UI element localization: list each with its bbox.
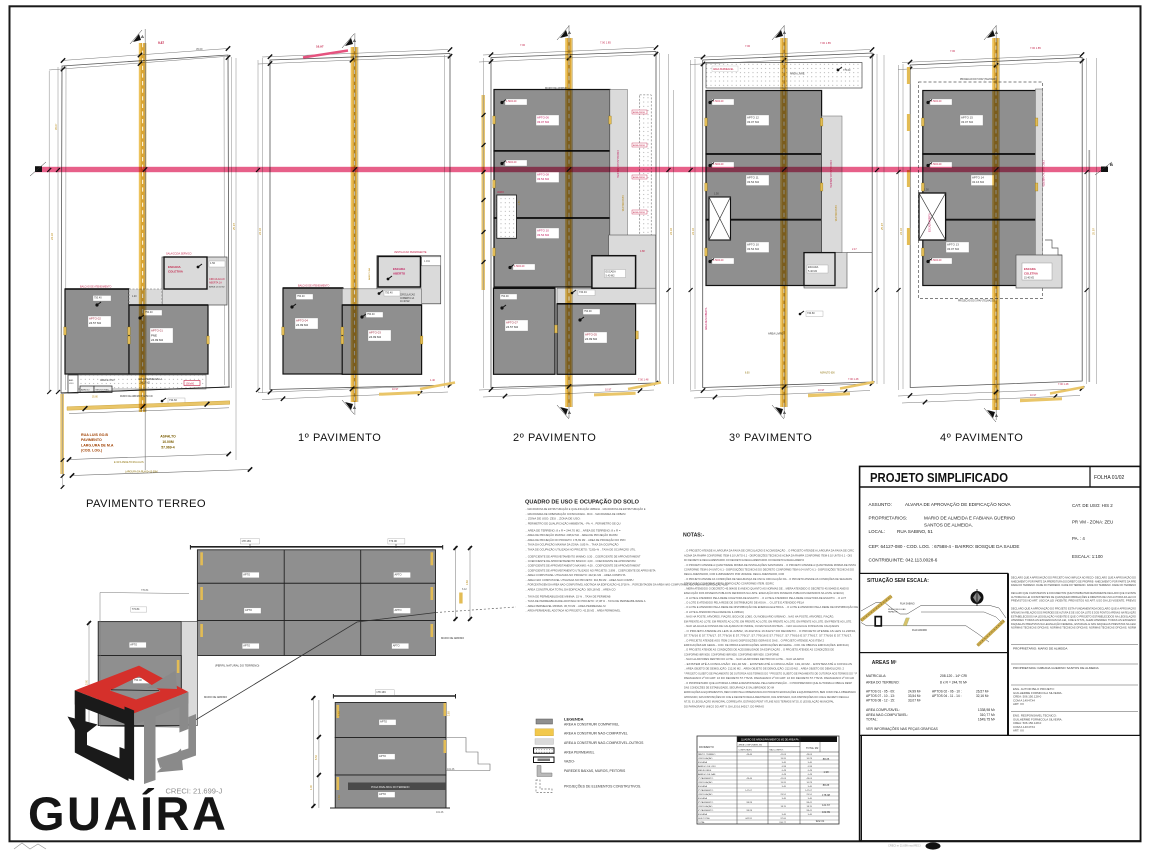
svg-text:PREVISTOS NO ART. USO DA LEI: PREVISTOS NO ART. USO DA LEI VIGENTE. PR… bbox=[1011, 599, 1136, 603]
svg-text:DADE DO TERRENO. DADE DO TER: DADE DO TERRENO. DADE DO TERRENO. DADE D… bbox=[1011, 583, 1137, 587]
svg-text:AREA NAO-COMPUTAVEL:: AREA NAO-COMPUTAVEL: bbox=[866, 713, 908, 717]
svg-text:6.00: 6.00 bbox=[745, 373, 750, 375]
svg-text:.. COEFICIENTE DE APROVEITAMEN: .. COEFICIENTE DE APROVEITAMENTO UTILIZA… bbox=[526, 568, 656, 572]
svg-text:1.491: 1.491 bbox=[424, 260, 431, 263]
svg-text:98.41: 98.41 bbox=[807, 802, 813, 804]
svg-text:7.00: 7.00 bbox=[520, 43, 526, 47]
svg-text:* PROJETO SUJEITO DE PAGAMENTO: * PROJETO SUJEITO DE PAGAMENTO DE OUTORG… bbox=[684, 671, 857, 675]
svg-text:AREA LIVRE: AREA LIVRE bbox=[790, 73, 805, 76]
svg-text:.. NAO HA ARVORES DENTRO DO LO: .. NAO HA ARVORES DENTRO DO LOTE. .. NAO… bbox=[684, 657, 805, 661]
svg-text:.. ZONA DE USO: ZEU .. ZONA: .. ZONA DE USO: ZEU .. ZONA DE USO: bbox=[526, 517, 581, 521]
svg-text:24.99 M2: 24.99 M2 bbox=[296, 323, 308, 327]
svg-text:770.84: 770.84 bbox=[132, 608, 140, 611]
svg-text:CONFORME NBR 9050. CONFORME NB: CONFORME NBR 9050. CONFORME NBR 9050. CO… bbox=[684, 652, 779, 656]
svg-text:2.80: 2.80 bbox=[338, 795, 341, 800]
svg-text:NOTAS:-: NOTAS:- bbox=[683, 533, 704, 539]
svg-text:APTO: APTO bbox=[243, 644, 250, 648]
svg-text:ART: XX: ART: XX bbox=[1013, 729, 1024, 733]
svg-text:.. AREA PERMEAVEL MINIMA: 36,: .. AREA PERMEAVEL MINIMA: 36,70 M2 .. AR… bbox=[526, 604, 606, 608]
svg-text:150x60: 150x60 bbox=[186, 381, 195, 385]
svg-text:AREA PERM.: AREA PERM. bbox=[633, 176, 646, 179]
svg-text:NTJS, E LEGISLAÇÃO MUNICIPAL: NTJS, E LEGISLAÇÃO MUNICIPAL CORRELATA, … bbox=[684, 699, 834, 704]
svg-text:.. AREA OBJETO DE DEMOLIÇÃO: 2: .. AREA OBJETO DE DEMOLIÇÃO: 212,00 M2 .… bbox=[684, 666, 844, 671]
svg-text:TOTAL: TOTAL bbox=[698, 821, 706, 824]
svg-text:PROJECAO DO 5 PAV (TELHADO): PROJECAO DO 5 PAV (TELHADO) bbox=[960, 78, 997, 81]
svg-text:A: A bbox=[353, 38, 356, 43]
svg-text:15.20: 15.20 bbox=[781, 758, 787, 760]
svg-text:MARIO DE ALMEIDA E FABIANA GU: MARIO DE ALMEIDA E FABIANA GUERINO bbox=[924, 516, 1016, 521]
svg-text:CONTRIBUINTE: 042.113.002: CONTRIBUINTE: 042.113.0028-6 bbox=[869, 558, 938, 563]
svg-text:APTO: APTO bbox=[243, 572, 250, 576]
svg-text:.. AREA PERMEAVEL ADOTADA NO P: .. AREA PERMEAVEL ADOTADA NO PROJETO: 42… bbox=[526, 609, 621, 613]
svg-text:APTO 05: APTO 05 bbox=[585, 333, 597, 337]
svg-text:.. AREA NAO COMPUTAVEL UTILIZA: .. AREA NAO COMPUTAVEL UTILIZADA NO PROJ… bbox=[526, 578, 634, 582]
svg-text:PA. : 4: PA. : 4 bbox=[1072, 536, 1085, 541]
svg-text:24.99 M2: 24.99 M2 bbox=[369, 335, 381, 339]
svg-text:1.50: 1.50 bbox=[714, 193, 719, 196]
svg-text:REGUL AMENTADOR, COM ILUMINAME: REGUL AMENTADOR, COM ILUMINAMENTO POR UN… bbox=[684, 572, 784, 576]
svg-text:33.07 M2: 33.07 M2 bbox=[747, 120, 759, 124]
svg-text:AREA COMPUTAVEL:: AREA COMPUTAVEL: bbox=[866, 708, 900, 712]
svg-text:35.80: 35.80 bbox=[92, 397, 98, 399]
svg-text:5.40 M2: 5.40 M2 bbox=[808, 270, 818, 273]
svg-text:.. O PROJETO ATENDE AOS ITEM: .. O PROJETO ATENDE AOS ITEM 2 SUAS DISP… bbox=[684, 637, 824, 642]
svg-text:AREA PERM.: AREA PERM. bbox=[633, 211, 646, 214]
svg-text:PAVTO. TERREO: PAVTO. TERREO bbox=[698, 753, 716, 756]
svg-text:754.00: 754.00 bbox=[501, 295, 509, 298]
svg-text:2.47: 2.47 bbox=[852, 248, 857, 251]
svg-text:RUA MADRID: RUA MADRID bbox=[912, 629, 927, 632]
svg-text:MURO DE ARRIMO H=2.50 CD: MURO DE ARRIMO H=2.50 CD bbox=[120, 395, 153, 398]
svg-text:PROJECAO DO 5 PAV (TELHADO): PROJECAO DO 5 PAV (TELHADO) bbox=[958, 300, 995, 303]
svg-text:7.00: 7.00 bbox=[745, 44, 751, 48]
svg-text:750.40: 750.40 bbox=[134, 678, 142, 682]
svg-text:APTO 08: APTO 08 bbox=[537, 173, 549, 177]
svg-text:APTO 06: APTO 06 bbox=[537, 116, 549, 120]
svg-text:ALVARA DE APROVAÇÃO DE EDIFIC: ALVARA DE APROVAÇÃO DE EDIFICAÇÃO NOVA bbox=[905, 501, 1012, 507]
svg-text:1.50/4.20: 1.50/4.20 bbox=[931, 259, 942, 262]
svg-text:AREA PERMEAVEL: AREA PERMEAVEL bbox=[713, 68, 734, 71]
svg-text:APTO 10: APTO 10 bbox=[747, 243, 759, 247]
svg-text:57.969-4: 57.969-4 bbox=[161, 446, 174, 450]
svg-text:APTO 03: APTO 03 bbox=[369, 331, 381, 335]
svg-text:ACIMA DA RAMPA CONFORME ITEM 6: ACIMA DA RAMPA CONFORME ITEM 6.10 UNTO 6… bbox=[684, 552, 852, 557]
svg-text:APTO: APTO bbox=[380, 720, 387, 724]
svg-text:SANTOS DE ALMEIDA.: SANTOS DE ALMEIDA. bbox=[924, 523, 973, 528]
svg-text:QUADRO DE AREAS/PAVIMENTOS M2: QUADRO DE AREAS/PAVIMENTOS M2 DE AREA PA bbox=[741, 739, 799, 742]
svg-text:LARG.URA DE M.A: LARG.URA DE M.A bbox=[81, 443, 114, 447]
svg-text:AREA A CONSTRUIR COMPATIVEL: AREA A CONSTRUIR COMPATIVEL bbox=[564, 723, 619, 727]
svg-text:6.52: 6.52 bbox=[315, 755, 318, 760]
svg-text:SUB TOTAL: SUB TOTAL bbox=[698, 817, 711, 820]
svg-text:.. MACROAREA DE URBANIZAÇÃO CO: .. MACROAREA DE URBANIZAÇÃO CONSOLIDADA … bbox=[526, 511, 626, 516]
svg-text:.. NAO HA AGUA E FOSSAS DE CAL: .. NAO HA AGUA E FOSSAS DE CALIÇADAS NO … bbox=[684, 624, 839, 628]
svg-text:.. AREA COMPUTAVEL UTILIZADA: .. AREA COMPUTAVEL UTILIZADA NO PROJETO:… bbox=[526, 573, 626, 577]
svg-text:E 32.5 ASFALTO RUA LUIS: E 32.5 ASFALTO RUA LUIS bbox=[114, 461, 144, 464]
svg-text:178.98: 178.98 bbox=[822, 793, 830, 797]
svg-text:1.50/4.20: 1.50/4.20 bbox=[713, 100, 724, 103]
svg-text:EXECUÇÃO DOS PASSEIOS PUBLICOS: EXECUÇÃO DOS PASSEIOS PUBLICOS DEFINIDOS… bbox=[684, 590, 845, 595]
svg-text:4º PAVIMENTO: 4º PAVIMENTO bbox=[698, 809, 713, 812]
svg-text:750.40: 750.40 bbox=[385, 292, 393, 295]
svg-text:49.03: 49.03 bbox=[807, 754, 813, 756]
svg-text:8 x R = 244,70 M²: 8 x R = 244,70 M² bbox=[940, 681, 968, 685]
svg-text:EDIFICAÇÕES EM GERAL - COD. DE: EDIFICAÇÕES EM GERAL - COD. DE OBRAS E E… bbox=[684, 642, 850, 647]
svg-text:APTO 11: APTO 11 bbox=[747, 176, 759, 180]
svg-text:35.09: 35.09 bbox=[196, 47, 203, 51]
svg-text:.. COEFICIENTE DE APROVEITAMEN: .. COEFICIENTE DE APROVEITAMENTO MINIMO:… bbox=[526, 554, 641, 558]
svg-text:1649,75 M²: 1649,75 M² bbox=[978, 718, 996, 722]
svg-text:750.40: 750.40 bbox=[367, 313, 375, 316]
svg-text:.. O PROJETO ATENDE A LARGURA: .. O PROJETO ATENDE A LARGURA DA FAIXA D… bbox=[684, 548, 855, 553]
svg-text:734.04: 734.04 bbox=[579, 291, 587, 294]
svg-text:33.54 M2: 33.54 M2 bbox=[537, 233, 549, 237]
svg-text:RUA SABINO: RUA SABINO bbox=[900, 603, 915, 606]
svg-text:ESCADA ABERTA: ESCADA ABERTA bbox=[929, 213, 932, 232]
svg-text:APTO 02: APTO 02 bbox=[89, 317, 101, 321]
svg-text:88.25: 88.25 bbox=[823, 757, 830, 761]
svg-text:.. AREA DE PROJEÇÃO DO PROJETO: .. AREA DE PROJEÇÃO DO PROJETO: 176,69 M… bbox=[526, 537, 627, 542]
svg-text:APTO 14: APTO 14 bbox=[972, 176, 984, 180]
svg-text:(COD. LOG.): (COD. LOG.) bbox=[81, 449, 103, 453]
svg-text:24.57 M2: 24.57 M2 bbox=[506, 325, 518, 329]
svg-text:MATRICULA:: MATRICULA: bbox=[866, 674, 886, 678]
svg-text:APROVADO, DAS DISPOSIÇÕES DO C: APROVADO, DAS DISPOSIÇÕES DO COE E DECRE… bbox=[684, 694, 849, 699]
svg-text:AREA 14.50 M2: AREA 14.50 M2 bbox=[209, 285, 225, 288]
svg-text:CIRCULAÇÃO: CIRCULAÇÃO bbox=[698, 805, 713, 808]
svg-text:24.32: 24.32 bbox=[691, 228, 695, 235]
svg-text:1º PAVIMENTO: 1º PAVIMENTO bbox=[698, 777, 713, 780]
svg-text:1.50: 1.50 bbox=[924, 189, 929, 192]
svg-text:33.54 M2: 33.54 M2 bbox=[747, 247, 759, 251]
svg-text:ESCADA: ESCADA bbox=[1024, 267, 1036, 271]
svg-text:750.40: 750.40 bbox=[94, 297, 102, 300]
svg-text:25.97: 25.97 bbox=[880, 223, 884, 230]
svg-text:QUADRO DE USO E OCUPAÇÃO DO SO: QUADRO DE USO E OCUPAÇÃO DO SOLO bbox=[525, 499, 639, 506]
svg-text:EDIFICAÇÕES E EQUIPAMENTOS, BE: EDIFICAÇÕES E EQUIPAMENTOS, BEM COMO PEL… bbox=[684, 689, 857, 694]
svg-text:A: A bbox=[783, 410, 786, 415]
svg-text:POGA PAVE ABUL DO TERRENO: POGA PAVE ABUL DO TERRENO bbox=[371, 786, 409, 789]
svg-text:A: A bbox=[995, 413, 998, 418]
svg-text:APTO 13: APTO 13 bbox=[947, 243, 959, 247]
svg-text:121.67: 121.67 bbox=[822, 803, 830, 807]
svg-text:1.50/4.20: 1.50/4.20 bbox=[713, 163, 724, 166]
svg-text:A: A bbox=[783, 30, 786, 35]
svg-text:ESCADA: ESCADA bbox=[393, 267, 406, 271]
svg-text:97.00: 97.00 bbox=[781, 818, 787, 820]
svg-text:1.50/4.20: 1.50/4.20 bbox=[931, 163, 942, 166]
svg-text:DO DECRETO E REGULAMENTADOR. D: DO DECRETO E REGULAMENTADOR. DO DECRETO … bbox=[684, 558, 804, 562]
svg-text:ESCADA: ESCADA bbox=[606, 271, 617, 274]
svg-text:.. TAXA DA OCUPAÇÃO MAXIMA DA: .. TAXA DA OCUPAÇÃO MAXIMA DA ZONA: 0,85… bbox=[526, 542, 620, 547]
svg-text:PARAGRAFO 2º DO ART. 16 DO D: PARAGRAFO 2º DO ART. 16 DO DECRETO 57.77… bbox=[684, 676, 855, 680]
svg-text:7.00 1.85: 7.00 1.85 bbox=[600, 41, 611, 45]
svg-text:754.00: 754.00 bbox=[584, 310, 592, 313]
svg-text:4º PAVIMENTO: 4º PAVIMENTO bbox=[940, 432, 1023, 444]
svg-text:APTO 07: APTO 07 bbox=[506, 321, 518, 325]
svg-text:.. O PROJETO ATENDE AS LEIS 1: .. O PROJETO ATENDE AS LEIS 11.228/92, 1… bbox=[684, 629, 856, 633]
svg-text:147.07: 147.07 bbox=[745, 790, 752, 792]
svg-text:LARGURA DA RUA E=10.00M: LARGURA DA RUA E=10.00M bbox=[125, 471, 158, 474]
svg-text:10.29: 10.29 bbox=[807, 758, 813, 760]
svg-text:DAS CONDIÇÕES DE ESTABILIDADE,: DAS CONDIÇÕES DE ESTABILIDADE, SEGURANÇA… bbox=[684, 684, 774, 689]
svg-text:750.40: 750.40 bbox=[297, 295, 305, 298]
svg-text:APTO: APTO bbox=[395, 572, 402, 576]
svg-text:98.28: 98.28 bbox=[747, 802, 753, 804]
svg-text:7.00 1.48: 7.00 1.48 bbox=[638, 379, 649, 382]
svg-text:PR VM - ZONA: ZEU: PR VM - ZONA: ZEU bbox=[1072, 520, 1113, 525]
svg-text:.. AREA DE PROJEÇÃO MAXIMA: 20: .. AREA DE PROJEÇÃO MAXIMA: 208,02 M2 ..… bbox=[526, 532, 618, 537]
svg-text:24.32: 24.32 bbox=[669, 228, 673, 235]
svg-text:PAREDES BAIXAS, MUROS, PEITORI: PAREDES BAIXAS, MUROS, PEITORIS bbox=[564, 769, 626, 773]
svg-text:APTO: APTO bbox=[245, 608, 252, 612]
svg-text:DESCOBERTA: DESCOBERTA bbox=[834, 205, 837, 222]
svg-text:734.60: 734.60 bbox=[807, 312, 815, 315]
svg-text:AREA COMPUTAVEL M2: AREA COMPUTAVEL M2 bbox=[739, 744, 763, 747]
svg-text:AREA A CONSTRUIR NAO-COMPATIV: AREA A CONSTRUIR NAO-COMPATIVEL bbox=[564, 732, 628, 736]
svg-text:6.42: 6.42 bbox=[462, 588, 467, 591]
svg-text:APTOS 07 - 10 - 13:: APTOS 07 - 10 - 13: bbox=[866, 694, 895, 698]
svg-text:1.50/4.20: 1.50/4.20 bbox=[506, 161, 517, 164]
svg-text:4.88: 4.88 bbox=[640, 250, 645, 253]
svg-text:33.54 M2: 33.54 M2 bbox=[537, 177, 549, 181]
svg-text:24,99 M²: 24,99 M² bbox=[908, 690, 921, 694]
svg-text:LIXO: LIXO bbox=[69, 383, 74, 385]
svg-text:RUA LUIS GO.B: RUA LUIS GO.B bbox=[81, 433, 108, 437]
svg-text:ASFALTO: ASFALTO bbox=[160, 435, 176, 439]
svg-text:.. TAXA DE PERMEABILIDADE ADOT: .. TAXA DE PERMEABILIDADE ADOTADA NO PRO… bbox=[526, 599, 646, 603]
svg-text:A: A bbox=[353, 405, 356, 410]
svg-text:GUAÍRA: GUAÍRA bbox=[28, 787, 228, 840]
svg-text:SITUAÇÃO SEM ESCALA:: SITUAÇÃO SEM ESCALA: bbox=[867, 577, 929, 584]
svg-text:24.99 M2: 24.99 M2 bbox=[585, 337, 597, 341]
svg-text:7.00 1.48: 7.00 1.48 bbox=[848, 378, 859, 381]
svg-text:773.00: 773.00 bbox=[389, 539, 397, 543]
svg-text:MURO DE ARRIMO: MURO DE ARRIMO bbox=[441, 636, 464, 640]
svg-text:7.00 1.85: 7.00 1.85 bbox=[820, 41, 831, 45]
svg-text:734.60: 734.60 bbox=[169, 398, 177, 402]
svg-text:PROPRIETARIOS:: PROPRIETARIOS: bbox=[869, 516, 908, 521]
svg-text:DESCOBERTA: DESCOBERTA bbox=[621, 195, 624, 212]
svg-text:.. O PROPRIETARIO QUE AUTORIZA: .. O PROPRIETARIO QUE AUTORIZA A OBRA E … bbox=[684, 680, 852, 685]
svg-text:CIRCULACAO ABERTA: CIRCULACAO ABERTA bbox=[1042, 160, 1045, 187]
svg-text:APTOS 08 - 12 - 15:: APTOS 08 - 12 - 15: bbox=[866, 699, 895, 703]
svg-text:1.50: 1.50 bbox=[210, 261, 216, 265]
svg-text:ABRIGO DE LIXO: ABRIGO DE LIXO bbox=[698, 765, 716, 768]
svg-text:.. O PROJETO ATENDE AS CONDIÇ: .. O PROJETO ATENDE AS CONDIÇÕES DE ACES… bbox=[684, 647, 834, 652]
svg-text:CAT. DE USO: HIS 2: CAT. DE USO: HIS 2 bbox=[1072, 503, 1113, 508]
svg-text:BALCAO DE ATENDIMENTO: BALCAO DE ATENDIMENTO bbox=[80, 286, 112, 289]
svg-text:147.07: 147.07 bbox=[805, 790, 812, 792]
svg-text:33,54 M²: 33,54 M² bbox=[908, 694, 921, 698]
svg-text:ESCADA: ESCADA bbox=[698, 761, 708, 764]
svg-text:9.87: 9.87 bbox=[158, 41, 164, 45]
svg-text:32.16 M2: 32.16 M2 bbox=[972, 180, 984, 184]
svg-text:RUA SABINO, 51: RUA SABINO, 51 bbox=[897, 529, 933, 534]
svg-text:7.00 1.85: 7.00 1.85 bbox=[1030, 46, 1041, 50]
svg-text:25.97: 25.97 bbox=[232, 223, 236, 230]
svg-text:PROJETO SIMPLIFICADO: PROJETO SIMPLIFICADO bbox=[870, 470, 1008, 485]
svg-text:10.97: 10.97 bbox=[1030, 394, 1037, 397]
svg-text:ASSUNTO:: ASSUNTO: bbox=[869, 502, 892, 507]
svg-text:770.84: 770.84 bbox=[141, 589, 149, 592]
svg-text:1.50/4.20: 1.50/4.20 bbox=[506, 100, 517, 103]
svg-text:10.97: 10.97 bbox=[392, 388, 399, 391]
svg-text:.. O LOTE E ATENDIDO PELA REDE: .. O LOTE E ATENDIDO PELA REDE DE DISTRI… bbox=[684, 604, 858, 609]
svg-text:APTO: APTO bbox=[130, 642, 137, 646]
svg-text:15.20: 15.20 bbox=[781, 782, 787, 784]
svg-text:1.40: 1.40 bbox=[430, 379, 435, 382]
svg-text:NAO-COMPUT.: NAO-COMPUT. bbox=[770, 749, 784, 752]
svg-text:.. O LOTE E ATENDIDO PELA REDE: .. O LOTE E ATENDIDO PELA REDE COLETORA … bbox=[684, 596, 846, 600]
svg-text:CIRCULACAO: CIRCULACAO bbox=[400, 294, 415, 297]
svg-text:10.00M: 10.00M bbox=[162, 440, 173, 444]
svg-text:APTO 10: APTO 10 bbox=[537, 229, 549, 233]
svg-text:.. PERIMETRO DE QUALIFICAÇÃO A: .. PERIMETRO DE QUALIFICAÇÃO AMBIENTAL -… bbox=[526, 520, 621, 525]
svg-text:APTO: APTO bbox=[379, 754, 386, 758]
svg-text:10.97: 10.97 bbox=[605, 388, 612, 391]
svg-text:APTO 01: APTO 01 bbox=[151, 329, 163, 333]
svg-text:310,77 M²: 310,77 M² bbox=[980, 713, 996, 717]
svg-text:2º PAVIMENTO: 2º PAVIMENTO bbox=[513, 432, 596, 444]
svg-text:ABERTA 1A: ABERTA 1A bbox=[209, 281, 222, 284]
svg-text:APTO 15: APTO 15 bbox=[961, 116, 973, 120]
svg-text:SALA/COZ/A.SERVICO: SALA/COZ/A.SERVICO bbox=[166, 253, 192, 256]
svg-text:.. COEFICIENTE DE APROVEITAMEN: .. COEFICIENTE DE APROVEITAMENTO BASICO:… bbox=[526, 559, 636, 563]
svg-text:CIRCULAÇÃO: CIRCULAÇÃO bbox=[698, 781, 713, 784]
svg-text:ASFALTO 600: ASFALTO 600 bbox=[820, 372, 835, 375]
svg-text:1.98: 1.98 bbox=[823, 770, 829, 774]
svg-text:ABERTO: ABERTO bbox=[393, 271, 406, 275]
svg-text:10.29: 10.29 bbox=[807, 782, 813, 784]
svg-text:33,07 M²: 33,07 M² bbox=[908, 699, 921, 703]
svg-text:A: A bbox=[568, 410, 571, 415]
svg-text:A: A bbox=[568, 30, 571, 35]
svg-text:.. O PROJETO ATENDE AS CONDIÇ: .. O PROJETO ATENDE AS CONDIÇÕES DE SEGU… bbox=[684, 576, 852, 581]
svg-text:COBERTA 1A: COBERTA 1A bbox=[400, 297, 415, 300]
svg-text:1.50/4.20: 1.50/4.20 bbox=[514, 265, 525, 268]
svg-text:35.07: 35.07 bbox=[54, 123, 58, 130]
svg-text:APTO 04: APTO 04 bbox=[296, 319, 308, 323]
svg-text:10.40 M2: 10.40 M2 bbox=[400, 301, 410, 303]
svg-text:49.03: 49.03 bbox=[807, 778, 813, 780]
svg-text:310.77: 310.77 bbox=[779, 822, 786, 824]
svg-text:1338,98 M²: 1338,98 M² bbox=[978, 708, 996, 712]
svg-text:COMPUTAVEL: COMPUTAVEL bbox=[739, 749, 753, 752]
svg-text:98.41: 98.41 bbox=[807, 810, 813, 812]
svg-text:15.40 M2: 15.40 M2 bbox=[1024, 276, 1035, 279]
svg-text:CIRCULACAO ABERTA: CIRCULACAO ABERTA bbox=[829, 160, 833, 188]
svg-text:2º PAVIMENTO: 2º PAVIMENTO bbox=[698, 789, 713, 792]
svg-text:CONFORME ITEM 6.04 UNTO 6.1 -: CONFORME ITEM 6.04 UNTO 6.1 - DISPOSIÇÕE… bbox=[684, 566, 855, 571]
svg-text:33.07 M2: 33.07 M2 bbox=[947, 247, 959, 251]
svg-text:10.97: 10.97 bbox=[818, 389, 825, 392]
svg-text:25.97: 25.97 bbox=[1092, 228, 1096, 235]
svg-text:ESCADA: ESCADA bbox=[698, 785, 708, 788]
svg-text:24.57 M2: 24.57 M2 bbox=[89, 321, 101, 325]
svg-text:49.46: 49.46 bbox=[747, 754, 753, 756]
svg-text:COLETIVA: COLETIVA bbox=[1024, 271, 1038, 275]
svg-text:33.07 M2: 33.07 M2 bbox=[961, 120, 973, 124]
svg-text:NORMAS TECNICAS OFICIAIS. NO: NORMAS TECNICAS OFICIAIS. NORMAS TECNICA… bbox=[1011, 626, 1137, 630]
svg-text:PROJEÇÕES DE ELEMENTOS CONSTR: PROJEÇÕES DE ELEMENTOS CONSTRUTIVOS. bbox=[564, 783, 641, 788]
svg-text:1.50: 1.50 bbox=[519, 200, 521, 205]
svg-text:VER INFORMAÇÕES NAS PEÇAS GR: VER INFORMAÇÕES NAS PEÇAS GRAFICAS bbox=[866, 726, 939, 731]
svg-text:57.776/16 E 57.776/17. 57.776/: 57.776/16 E 57.776/17. 57.776/16 E 57.77… bbox=[684, 634, 852, 638]
svg-text:24.32: 24.32 bbox=[258, 228, 262, 235]
svg-text:COLETIVA: COLETIVA bbox=[168, 270, 184, 274]
svg-text:3º PAVIMENTO: 3º PAVIMENTO bbox=[698, 801, 713, 804]
svg-text:1.20: 1.20 bbox=[132, 296, 137, 298]
svg-text:.. O LOTE E ATENDIDO PELA REDE: .. O LOTE E ATENDIDO PELA REDE DE DISTRI… bbox=[684, 600, 804, 605]
svg-text:APTO: APTO bbox=[379, 792, 386, 796]
svg-text:EDIFICAÇÃO CONFORME NTERI. ED: EDIFICAÇÃO CONFORME NTERI. EDIFICAÇÃO CO… bbox=[684, 581, 775, 586]
svg-text:.. COEFICIENTE DE APROVEITAMEN: .. COEFICIENTE DE APROVEITAMENTO MAXIMO:… bbox=[526, 564, 641, 568]
svg-text:VAZIO-: VAZIO- bbox=[564, 759, 575, 763]
svg-text:(PERFIL NATURAL DO TERRENO): (PERFIL NATURAL DO TERRENO) bbox=[215, 664, 260, 668]
svg-text:1.50/4.20: 1.50/4.20 bbox=[931, 100, 942, 103]
svg-text:PNE: PNE bbox=[151, 333, 157, 337]
svg-text:5.40 M2: 5.40 M2 bbox=[606, 274, 616, 277]
svg-text:16.97: 16.97 bbox=[316, 45, 324, 49]
svg-text:AREA PERM.: AREA PERM. bbox=[633, 144, 646, 147]
svg-text:ABERTURA: ABERTURA bbox=[368, 268, 371, 280]
svg-text:178.169: 178.169 bbox=[376, 690, 386, 694]
svg-text:88.25: 88.25 bbox=[823, 783, 830, 787]
svg-text:33.07 M2: 33.07 M2 bbox=[537, 120, 549, 124]
svg-text:AREAS M²: AREAS M² bbox=[872, 660, 897, 666]
svg-text:.. MERA ATENDIDO O DECRETO 45: .. MERA ATENDIDO O DECRETO 45.904/05 E A… bbox=[684, 586, 850, 590]
svg-text:.. EXISTEM ATÉ A CONCLUSÃO:: .. EXISTEM ATÉ A CONCLUSÃO: 191,40 M2 ..… bbox=[684, 661, 852, 666]
svg-text:18.70: 18.70 bbox=[781, 806, 787, 808]
svg-text:CIRCULAÇÃO: CIRCULAÇÃO bbox=[698, 793, 713, 796]
svg-text:.. O LOTE E ATENDIDO PELA REDE: .. O LOTE E ATENDIDO PELA REDE DE ILUMIN… bbox=[684, 610, 745, 614]
svg-text:32,16 M²: 32,16 M² bbox=[976, 694, 989, 698]
svg-text:APTO: APTO bbox=[395, 608, 402, 612]
svg-text:101.46: 101.46 bbox=[436, 811, 444, 814]
svg-text:208.120 - 14º CRI: 208.120 - 14º CRI bbox=[940, 674, 967, 678]
svg-text:AREA DO TERRENO:: AREA DO TERRENO: bbox=[866, 681, 900, 685]
svg-text:.. AREA DE TERRENO: 8 x R = 24: .. AREA DE TERRENO: 8 x R = 244,70 M2 ..… bbox=[526, 528, 621, 532]
svg-text:.. MACROZONA DE ESTRUTURAÇÃO E: .. MACROZONA DE ESTRUTURAÇÃO E QUALIFICA… bbox=[526, 506, 646, 511]
svg-text:MEDIDORES: MEDIDORES bbox=[698, 770, 712, 772]
svg-text:PAVIMENTO: PAVIMENTO bbox=[81, 438, 102, 442]
svg-text:775.60: 775.60 bbox=[843, 69, 851, 72]
svg-text:1º PAVIMENTO: 1º PAVIMENTO bbox=[298, 432, 381, 444]
svg-text:APTOS 04 - 11 - 14 :: APTOS 04 - 11 - 14 : bbox=[932, 694, 962, 698]
svg-text:MURO DE ARRIMO: MURO DE ARRIMO bbox=[204, 695, 227, 699]
svg-text:CEP: 64127-080 - COD. LOG. : 6: CEP: 64127-080 - COD. LOG. : 67588-4 - B… bbox=[869, 544, 1020, 549]
svg-text:VENTILACAO PERMANENTE: VENTILACAO PERMANENTE bbox=[394, 251, 427, 254]
svg-text:102.89: 102.89 bbox=[822, 810, 830, 814]
svg-text:1.50/4.20: 1.50/4.20 bbox=[713, 259, 724, 262]
svg-text:PAVIMENTO TERREO: PAVIMENTO TERREO bbox=[86, 498, 206, 510]
svg-text:FOLHA 01/02: FOLHA 01/02 bbox=[1094, 475, 1125, 481]
svg-text:2.80: 2.80 bbox=[448, 711, 451, 716]
svg-text:AREA PERMEAVEL: AREA PERMEAVEL bbox=[564, 750, 595, 754]
svg-text:B: B bbox=[1110, 162, 1113, 167]
svg-text:A: A bbox=[141, 34, 144, 39]
svg-text:LEGENDA: LEGENDA bbox=[564, 717, 584, 722]
svg-text:18.70: 18.70 bbox=[807, 806, 813, 808]
svg-text:24.32: 24.32 bbox=[50, 233, 54, 240]
svg-text:TOTAL:: TOTAL: bbox=[866, 718, 878, 722]
svg-text:.. TAXA DE PERMEABILIDADE MINI: .. TAXA DE PERMEABILIDADE MINIMA: 15 % .… bbox=[526, 594, 611, 598]
svg-text:APTO: APTO bbox=[393, 644, 400, 648]
svg-text:49.46: 49.46 bbox=[747, 778, 753, 780]
svg-text:33.54 M2: 33.54 M2 bbox=[747, 180, 759, 184]
svg-text:26,57 M²: 26,57 M² bbox=[976, 690, 989, 694]
